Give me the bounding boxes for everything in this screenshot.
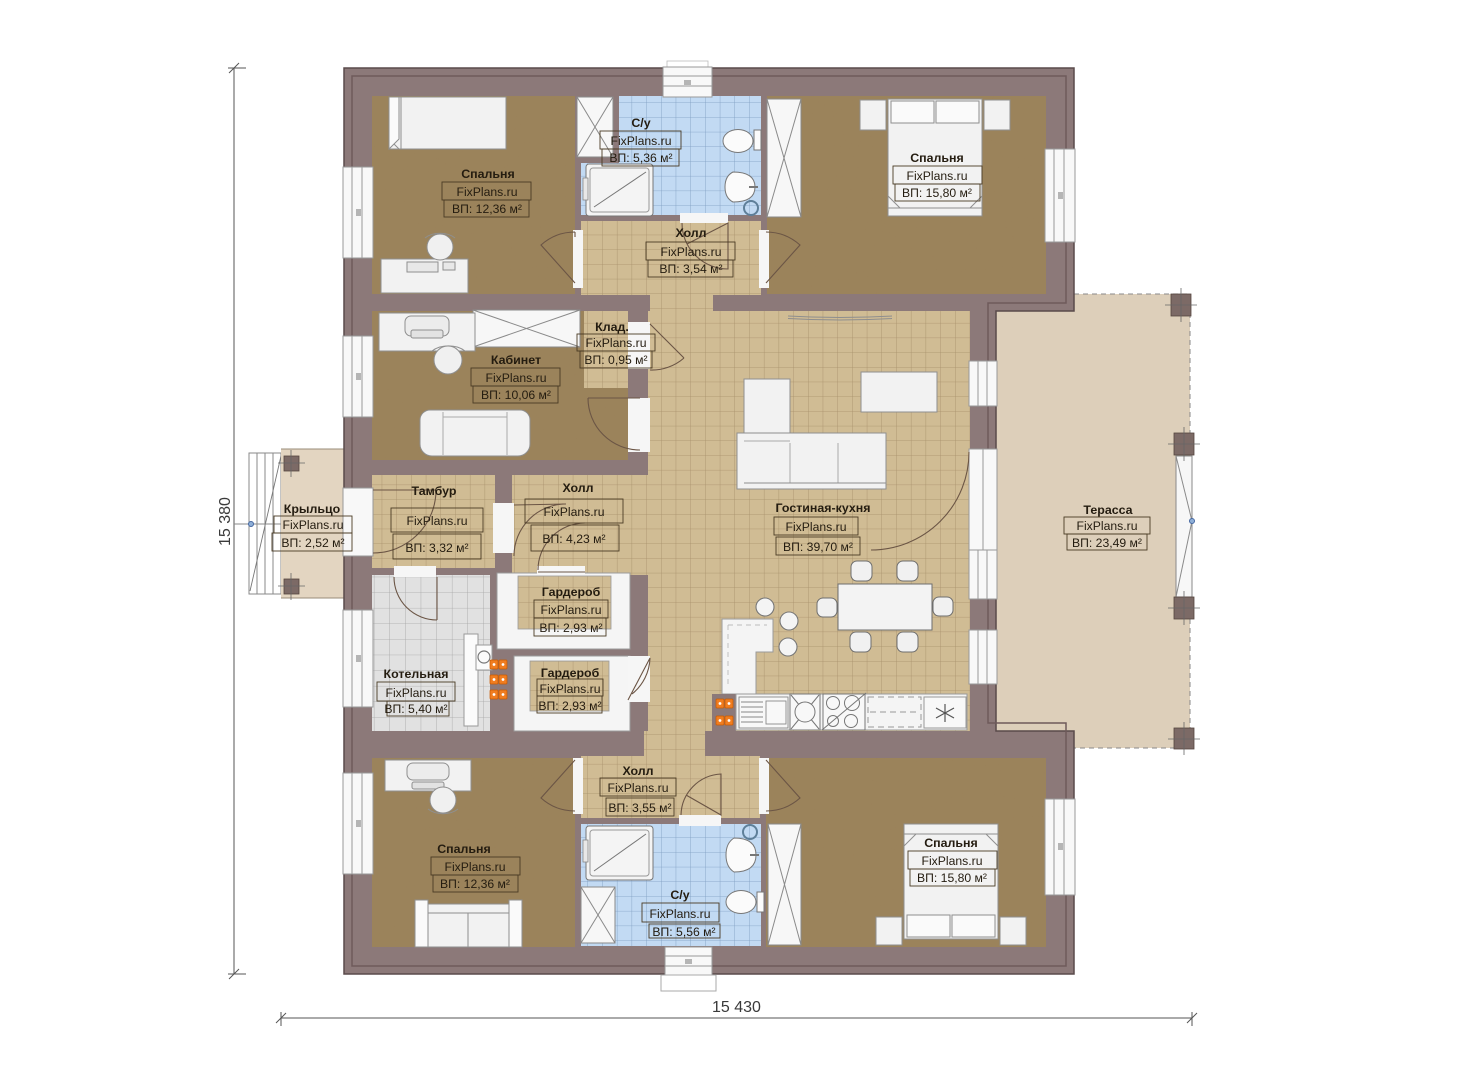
svg-text:FixPlans.ru: FixPlans.ru xyxy=(540,682,601,696)
svg-text:15 430: 15 430 xyxy=(712,999,761,1016)
svg-text:Крыльцо: Крыльцо xyxy=(284,502,341,516)
svg-text:FixPlans.ru: FixPlans.ru xyxy=(661,245,722,259)
svg-text:FixPlans.ru: FixPlans.ru xyxy=(907,169,968,183)
svg-text:15 380: 15 380 xyxy=(217,497,234,546)
svg-text:Спальня: Спальня xyxy=(910,151,964,165)
svg-text:Терасса: Терасса xyxy=(1083,503,1132,517)
svg-text:FixPlans.ru: FixPlans.ru xyxy=(611,134,672,148)
svg-text:Гардероб: Гардероб xyxy=(542,585,601,599)
svg-text:FixPlans.ru: FixPlans.ru xyxy=(786,520,847,534)
svg-text:Холл: Холл xyxy=(562,481,593,495)
svg-text:ВП: 5,36 м²: ВП: 5,36 м² xyxy=(609,151,672,165)
svg-text:ВП: 3,55 м²: ВП: 3,55 м² xyxy=(608,801,671,815)
svg-text:FixPlans.ru: FixPlans.ru xyxy=(283,518,344,532)
svg-text:ВП: 3,32 м²: ВП: 3,32 м² xyxy=(405,541,468,555)
svg-text:Гостиная-кухня: Гостиная-кухня xyxy=(776,501,871,515)
svg-text:FixPlans.ru: FixPlans.ru xyxy=(586,336,647,350)
svg-text:FixPlans.ru: FixPlans.ru xyxy=(457,185,518,199)
svg-text:FixPlans.ru: FixPlans.ru xyxy=(386,686,447,700)
svg-text:ВП: 5,40 м²: ВП: 5,40 м² xyxy=(384,702,447,716)
svg-text:FixPlans.ru: FixPlans.ru xyxy=(922,854,983,868)
svg-text:Гардероб: Гардероб xyxy=(541,666,600,680)
svg-text:Котельная: Котельная xyxy=(384,667,449,681)
svg-text:Спальня: Спальня xyxy=(461,167,515,181)
svg-text:Тамбур: Тамбур xyxy=(412,484,457,498)
svg-text:FixPlans.ru: FixPlans.ru xyxy=(650,907,711,921)
svg-text:Холл: Холл xyxy=(675,226,706,240)
svg-text:ВП: 2,93 м²: ВП: 2,93 м² xyxy=(539,621,602,635)
svg-text:Спальня: Спальня xyxy=(924,836,978,850)
svg-text:С/у: С/у xyxy=(670,888,689,902)
svg-text:ВП: 15,80 м²: ВП: 15,80 м² xyxy=(902,186,972,200)
svg-text:FixPlans.ru: FixPlans.ru xyxy=(541,603,602,617)
svg-text:ВП: 2,52 м²: ВП: 2,52 м² xyxy=(281,536,344,550)
svg-text:Спальня: Спальня xyxy=(437,842,491,856)
svg-text:FixPlans.ru: FixPlans.ru xyxy=(445,860,506,874)
svg-text:FixPlans.ru: FixPlans.ru xyxy=(544,505,605,519)
svg-text:FixPlans.ru: FixPlans.ru xyxy=(1077,519,1138,533)
svg-text:ВП: 2,93 м²: ВП: 2,93 м² xyxy=(538,699,601,713)
svg-text:Холл: Холл xyxy=(622,764,653,778)
svg-text:Клад.: Клад. xyxy=(595,320,629,334)
svg-text:ВП: 39,70 м²: ВП: 39,70 м² xyxy=(783,540,853,554)
svg-text:FixPlans.ru: FixPlans.ru xyxy=(486,371,547,385)
svg-text:ВП: 4,23 м²: ВП: 4,23 м² xyxy=(542,532,605,546)
svg-text:ВП: 5,56 м²: ВП: 5,56 м² xyxy=(652,925,715,939)
svg-text:ВП: 23,49 м²: ВП: 23,49 м² xyxy=(1072,536,1142,550)
svg-text:Кабинет: Кабинет xyxy=(491,353,541,367)
svg-text:ВП: 10,06 м²: ВП: 10,06 м² xyxy=(481,388,551,402)
svg-text:FixPlans.ru: FixPlans.ru xyxy=(407,514,468,528)
svg-text:ВП: 15,80 м²: ВП: 15,80 м² xyxy=(917,871,987,885)
svg-text:С/у: С/у xyxy=(631,116,650,130)
svg-text:FixPlans.ru: FixPlans.ru xyxy=(608,781,669,795)
svg-text:ВП: 0,95 м²: ВП: 0,95 м² xyxy=(584,353,647,367)
svg-text:ВП: 12,36 м²: ВП: 12,36 м² xyxy=(452,202,522,216)
svg-text:ВП: 3,54 м²: ВП: 3,54 м² xyxy=(659,262,722,276)
svg-text:ВП: 12,36 м²: ВП: 12,36 м² xyxy=(440,877,510,891)
